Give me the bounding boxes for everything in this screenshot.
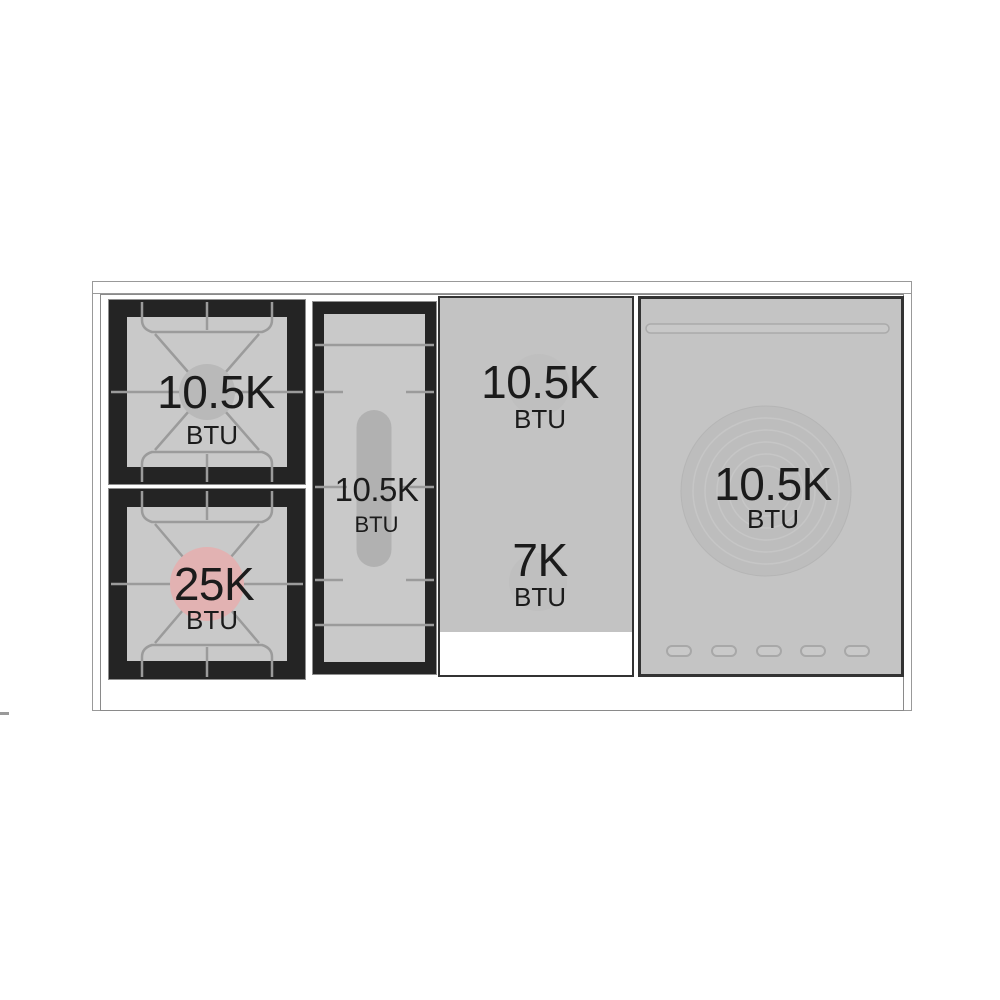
burner-top-left-unit: BTU <box>114 422 310 448</box>
french-top-section: 10.5K BTU <box>638 296 904 677</box>
burner-bottom-left-power: 25K <box>116 561 312 607</box>
dual-zone-top-unit: BTU <box>444 406 636 432</box>
griddle-unit: BTU <box>315 514 438 536</box>
burner-bottom-left: 25K BTU <box>109 489 305 679</box>
french-top-power: 10.5K <box>643 461 903 507</box>
dual-zone-top-power: 10.5K <box>444 359 636 405</box>
product-diagram-page: 10.5K BTU 25K BT <box>0 0 1000 1000</box>
handle-bar-icon <box>646 324 889 333</box>
dual-zone-section: 10.5K BTU 7K BTU <box>438 296 634 677</box>
artifact-mark <box>0 712 9 715</box>
griddle-burner: 10.5K BTU <box>313 302 436 674</box>
burner-bottom-left-unit: BTU <box>114 607 310 633</box>
griddle-power: 10.5K <box>315 473 438 506</box>
cooktop-surface: 10.5K BTU 25K BT <box>100 294 904 711</box>
dual-zone-bottom-power: 7K <box>444 537 636 583</box>
dual-zone-bottom-unit: BTU <box>444 584 636 610</box>
burner-top-left: 10.5K BTU <box>109 300 305 484</box>
vent-ovals-icon <box>667 646 869 656</box>
rangetop-diagram: 10.5K BTU 25K BT <box>92 281 912 711</box>
french-top-unit: BTU <box>643 506 903 532</box>
burner-top-left-power: 10.5K <box>118 369 314 415</box>
back-trim-strip <box>93 282 911 294</box>
